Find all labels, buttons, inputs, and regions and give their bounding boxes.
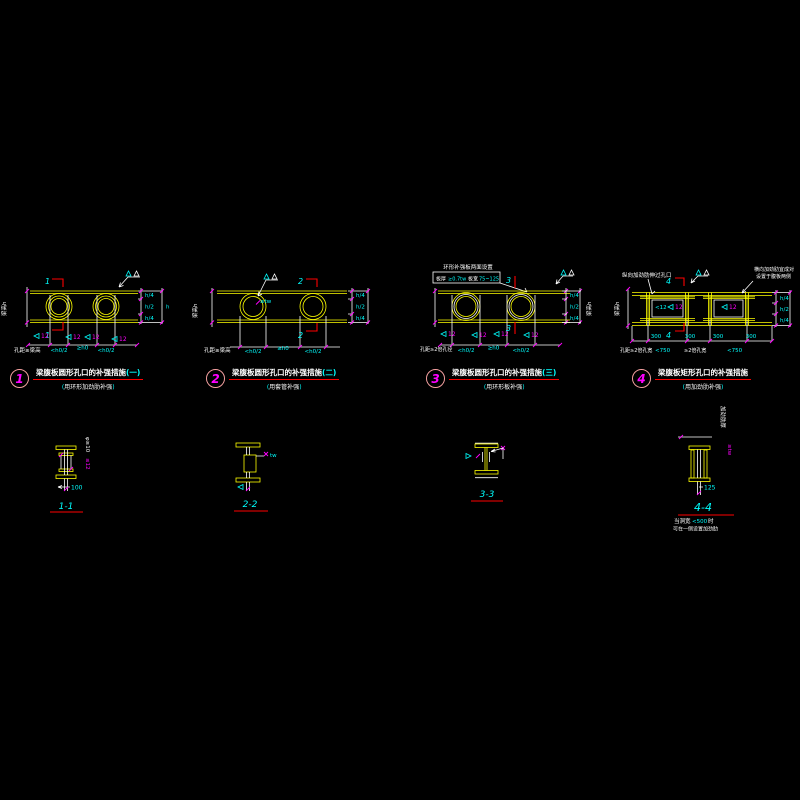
dim-right-1: h/4 — [780, 296, 789, 302]
section-3-3-label: 3-3 — [480, 490, 495, 500]
dim-right-1: h/4 — [356, 293, 365, 299]
svg-text:12: 12 — [531, 332, 539, 339]
sleeve-wall-note: tw — [270, 453, 277, 459]
section-1-1-dim: 100 — [71, 485, 83, 492]
detail-3-subtitle: (用环形板补强) — [484, 382, 525, 391]
weld-triangle-icon — [668, 305, 673, 310]
dim-hole-left: <h0/2 — [51, 348, 68, 354]
weld-triangle-icon — [722, 305, 727, 310]
dim-300-4: 300 — [746, 334, 757, 340]
transverse-stiffener-note-1: 横向加劲肋宜成对 — [754, 266, 794, 273]
detail-2-title: 梁腹板圆形孔口的补强措施(二) — [229, 369, 339, 380]
dim-hole-left: <h0/2 — [245, 349, 262, 355]
leader-line — [742, 281, 753, 293]
detail-3-beam — [438, 291, 570, 323]
dim-right-2: h/2 — [780, 307, 789, 313]
detail-4-badge: 4 — [632, 369, 651, 388]
svg-text:12: 12 — [73, 334, 81, 341]
dim-hole-right: <h0/2 — [98, 348, 115, 354]
detail-4-bottom-note: 孔距≥2倍孔宽 — [620, 347, 652, 354]
section-mark-2-top: 2 — [298, 277, 303, 286]
section-mark-3-top: 3 — [506, 276, 511, 285]
detail-2-beam — [217, 291, 347, 323]
detail-1-elevation: 1 1 12 12 12 12 <h0/2 ≥h0 <h0/2 h/4 h/2 … — [0, 271, 170, 354]
section-1-1: 100 φ≥10 ≤12 1-1 — [50, 437, 90, 512]
section-4-4-web — [698, 450, 704, 496]
dim-right-2: h/2 — [145, 305, 154, 311]
detail-1-left-label: 梁高h — [0, 301, 8, 316]
note-line2: 可在一侧设置加劲肋 — [673, 526, 718, 533]
weld-flag-icon — [691, 270, 709, 283]
section-3-3: 3-3 — [466, 443, 505, 501]
dim-right-1: h/4 — [145, 293, 154, 299]
detail-2-elevation: ≥tw 2 2 <h0/2 ≥h0 <h0/2 h/4 h/2 h/4 孔距≥梁… — [191, 274, 370, 355]
detail-4-beam — [632, 293, 772, 326]
detail-3-title: 梁腹板圆形孔口的补强措施(三) — [449, 369, 559, 380]
detail-1-title: 梁腹板圆形孔口的补强措施(一) — [33, 369, 143, 380]
detail-2-dim-lines — [212, 288, 369, 347]
section-mark-4-bottom: 4 — [666, 331, 671, 340]
dim-right-1: h/4 — [570, 293, 579, 299]
weld-triangle-icon — [238, 485, 243, 490]
section-4-4-dim: 125 — [704, 485, 716, 492]
weld-flag-icon — [258, 274, 278, 296]
rebar-diameter-note: φ≥10 — [84, 437, 90, 453]
dim-opening-spacing: ≥2倍孔宽 — [684, 347, 706, 354]
detail-3-title-suffix: (三) — [542, 368, 556, 377]
dim-right-3: h/4 — [145, 316, 154, 322]
svg-text:12: 12 — [448, 331, 456, 338]
dim-hole-spacing: ≥h0 — [77, 346, 89, 352]
detail-2-title-suffix: (二) — [322, 368, 336, 377]
dim-opening-width-2: <750 — [727, 348, 743, 354]
dim-hole-left: <h0/2 — [458, 348, 475, 354]
dim-hole-right: <h0/2 — [305, 349, 322, 355]
dim-300-1: 300 — [651, 334, 662, 340]
weld-flag-icon — [556, 270, 574, 284]
dim-hole-right: <h0/2 — [513, 348, 530, 354]
detail-2-badge: 2 — [206, 369, 225, 388]
svg-text:12: 12 — [92, 334, 100, 341]
svg-text:12: 12 — [119, 336, 127, 343]
detail-3-title-block: 3 梁腹板圆形孔口的补强措施(三) (用环形板补强) — [426, 369, 559, 391]
detail-2-bottom-note: 孔距≥梁高 — [204, 346, 231, 354]
detail-1-beam — [30, 291, 138, 323]
cad-drawing-canvas: 1 1 12 12 12 12 <h0/2 ≥h0 <h0/2 h/4 h/2 … — [0, 0, 800, 800]
dim-hole-spacing: ≥h0 — [277, 346, 289, 352]
section-mark-1-top: 1 — [45, 277, 50, 286]
detail-2-left-label: 梁高h — [191, 303, 199, 318]
detail-4-left-label: 梁高h — [613, 301, 621, 316]
detail-2-section-cut — [306, 279, 317, 331]
section-1-1-label: 1-1 — [59, 502, 74, 512]
note-line1-b: <500 — [692, 519, 708, 525]
section-mark-4-top: 4 — [666, 277, 671, 286]
detail-1-subtitle: (用环形加劲肋补强) — [62, 382, 115, 391]
longitudinal-stiffener-note: 纵向加劲肋伸过孔口 — [622, 271, 672, 279]
dim-right-total: h — [166, 305, 170, 311]
detail-4-title: 梁腹板矩形孔口的补强措施 — [655, 369, 751, 380]
detail-1-badge: 1 — [10, 369, 29, 388]
section-3-3-flanges-web — [475, 444, 498, 474]
svg-text:12: 12 — [479, 332, 487, 339]
detail-1-bottom-note: 孔距≥梁高 — [14, 346, 41, 354]
section-4-4-label: 4-4 — [694, 501, 712, 514]
sleeve-thickness-note: ≥tw — [260, 299, 272, 305]
detail-3-right-label: 梁高h — [585, 301, 593, 316]
rebar-spacing-note: ≤12 — [84, 458, 90, 470]
leader-line — [648, 279, 655, 294]
note-line1-c: 时 — [708, 517, 714, 525]
detail-2-title-block: 2 梁腹板圆形孔口的补强措施(二) (用套管补强) — [206, 369, 339, 391]
section-2-2-flanges-sleeve — [236, 443, 260, 482]
detail-2-dim-ticks — [210, 289, 370, 349]
dim-right-2: h/2 — [570, 305, 579, 311]
ring-plate-note: 环形补强板两面设置 — [443, 263, 493, 271]
detail-4-subtitle: (用加劲肋补强) — [683, 382, 724, 391]
weld-triangle-icon — [466, 454, 471, 459]
detail-3-elevation: 环形补强板两面设置 板厚 ≥0.7tw 板宽 75~125 12 12 12 1… — [420, 263, 593, 354]
dim-opening-width-1: <750 — [655, 348, 671, 354]
cad-linework: 1 1 12 12 12 12 <h0/2 ≥h0 <h0/2 h/4 h/2 … — [0, 0, 800, 800]
section-4-4-flanges-stiffeners — [689, 446, 710, 482]
weld-flag-icon — [119, 271, 140, 287]
detail-3-badge: 3 — [426, 369, 445, 388]
detail-1-title-block: 1 梁腹板圆形孔口的补强措施(一) (用环形加劲肋补强) — [10, 369, 143, 391]
note-line1-a: 当洞宽 — [674, 517, 691, 525]
dim-hole-spacing: ≥h0 — [488, 346, 500, 352]
section-2-2: tw 2-2 — [234, 443, 277, 511]
dim-300-2: 300 — [685, 334, 696, 340]
detail-4-title-block: 4 梁腹板矩形孔口的补强措施 (用加劲肋补强) — [632, 369, 751, 391]
section-3-3-ring-plates — [483, 452, 490, 462]
section-4-4: 加劲肋厚 ≥tw 125 4-4 当洞宽 <500 时 可在一侧设置加劲肋 — [673, 406, 734, 533]
detail-3-bottom-note: 孔距≥2倍孔径 — [420, 346, 452, 353]
spec-thickness-value: ≥0.7tw — [448, 277, 466, 283]
svg-text:12: 12 — [41, 333, 49, 340]
detail-1-weld-marks: 12 12 12 12 — [34, 333, 127, 343]
detail-3-weld-marks: 12 12 12 12 — [441, 331, 539, 339]
transverse-stiffener-note-2: 设置于腹板两侧 — [756, 273, 791, 280]
section-3-3-flange-edges — [475, 443, 498, 478]
section-mark-3-bottom: 3 — [506, 324, 511, 333]
weld-size: 12 — [729, 304, 737, 311]
detail-1-title-suffix: (一) — [126, 368, 140, 377]
weld-size: 12 — [675, 304, 683, 311]
spec-width-label: 板宽 — [468, 276, 478, 283]
stiffener-thickness-label: 加劲肋厚 — [719, 406, 727, 429]
section-mark-2-bottom: 2 — [298, 331, 303, 340]
spec-thickness-label: 板厚 — [436, 276, 446, 283]
dim-300-3: 300 — [713, 334, 724, 340]
opening-inner-dim: <12 — [655, 305, 667, 311]
dim-right-3: h/4 — [356, 316, 365, 322]
detail-4-elevation: 纵向加劲肋伸过孔口 横向加劲肋宜成对 设置于腹板两侧 <12 12 12 4 4… — [613, 266, 794, 354]
dim-right-3: h/4 — [570, 316, 579, 322]
dim-right-2: h/2 — [356, 305, 365, 311]
section-1-1-flanges — [56, 446, 76, 479]
section-2-2-label: 2-2 — [243, 500, 258, 510]
dim-right-3: h/4 — [780, 318, 789, 324]
section-2-2-web — [247, 447, 265, 491]
spec-width-value: 75~125 — [479, 277, 499, 283]
stiffener-thickness-value: ≥tw — [726, 444, 732, 456]
detail-2-subtitle: (用套管补强) — [267, 382, 302, 391]
